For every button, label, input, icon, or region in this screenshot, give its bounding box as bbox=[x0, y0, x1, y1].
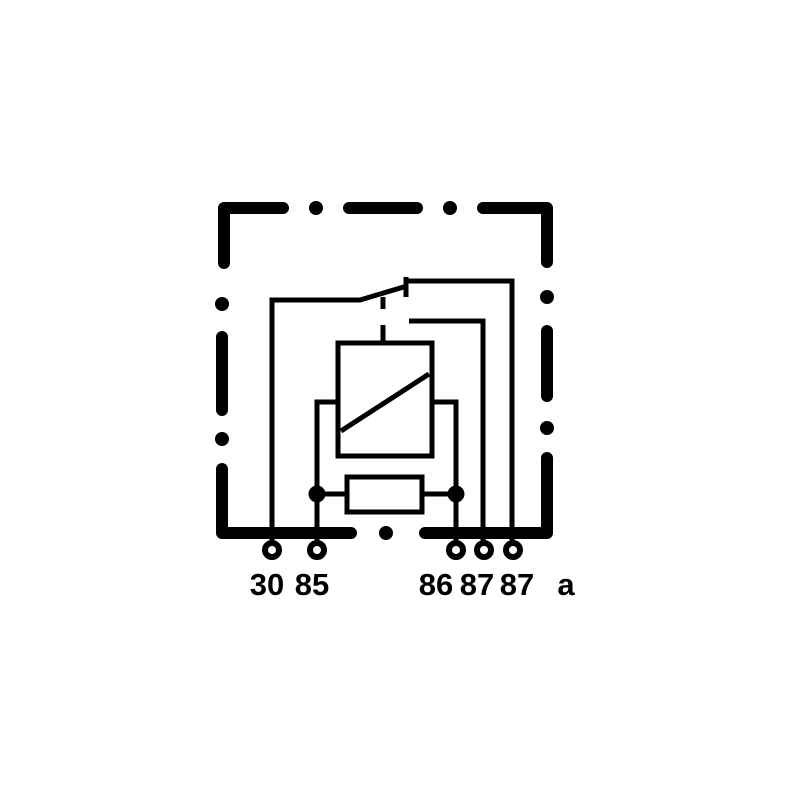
terminal-pin-85 bbox=[310, 543, 324, 557]
relay-diagram-page: 30 85 86 87 87 a bbox=[0, 0, 800, 800]
housing-dot bbox=[309, 201, 323, 215]
junction-dot-right bbox=[448, 486, 465, 503]
housing-dot bbox=[540, 421, 554, 435]
housing-corner-top-left bbox=[224, 208, 283, 263]
coil-body bbox=[338, 343, 432, 456]
terminal-pin-30 bbox=[265, 543, 279, 557]
housing-dot bbox=[379, 526, 393, 540]
junction-dot-left bbox=[309, 486, 326, 503]
terminal-label-86: 86 bbox=[419, 567, 453, 602]
terminal-pins bbox=[265, 543, 520, 557]
housing-corner-top-right bbox=[483, 208, 547, 262]
terminal-label-87: 87 bbox=[460, 567, 494, 602]
terminal-pin-86 bbox=[449, 543, 463, 557]
housing-dot bbox=[215, 432, 229, 446]
terminal-pin-87a bbox=[506, 543, 520, 557]
terminal-label-30: 30 bbox=[250, 567, 284, 602]
resistor-symbol bbox=[347, 477, 422, 512]
housing-dot bbox=[540, 290, 554, 304]
housing-dot bbox=[443, 201, 457, 215]
housing-corner-bottom-left bbox=[222, 469, 351, 533]
terminal-label-87a-number: 87 bbox=[500, 567, 534, 602]
housing-dot bbox=[215, 297, 229, 311]
terminal-label-85: 85 bbox=[295, 567, 329, 602]
terminal-pin-87 bbox=[477, 543, 491, 557]
coil-symbol bbox=[338, 343, 432, 456]
relay-diagram-canvas: 30 85 86 87 87 a bbox=[0, 0, 800, 800]
terminal-label-87a-letter: a bbox=[557, 567, 575, 602]
